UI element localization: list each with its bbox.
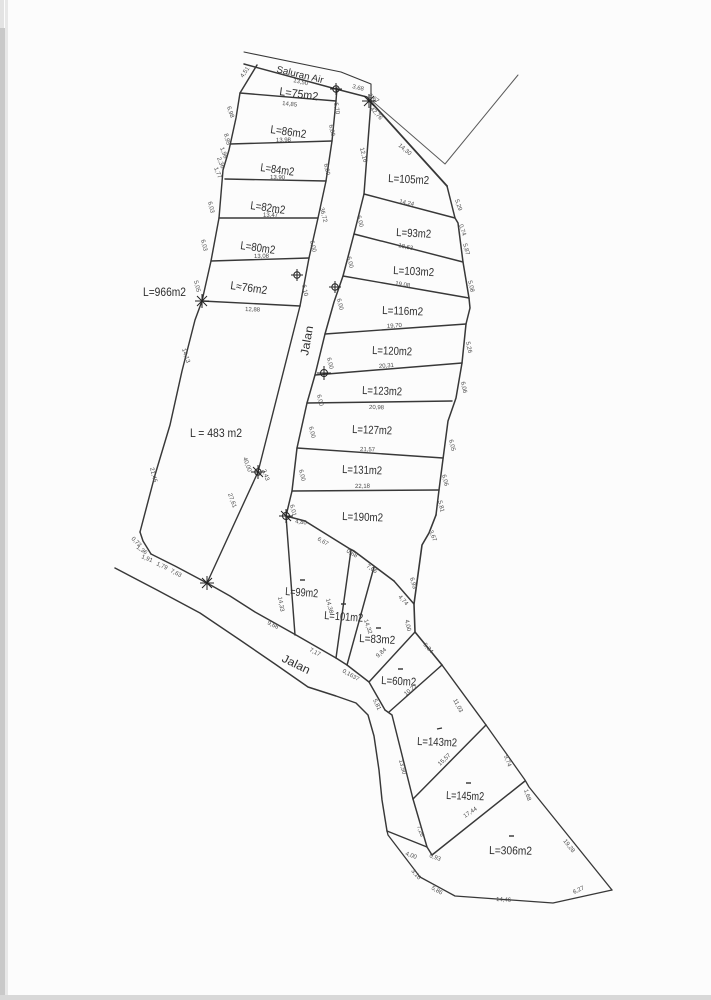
- svg-text:13,47: 13,47: [263, 213, 279, 219]
- svg-text:L=93m2: L=93m2: [396, 227, 432, 241]
- svg-text:12,88: 12,88: [245, 307, 261, 314]
- svg-text:22,18: 22,18: [355, 484, 371, 490]
- svg-text:L=83m2: L=83m2: [359, 633, 396, 647]
- svg-text:L=116m2: L=116m2: [382, 305, 423, 318]
- svg-text:L=105m2: L=105m2: [388, 173, 430, 187]
- svg-text:13,08: 13,08: [254, 254, 270, 260]
- svg-text:13,98: 13,98: [276, 137, 292, 144]
- svg-text:L=103m2: L=103m2: [393, 265, 435, 279]
- svg-text:21,57: 21,57: [360, 447, 376, 454]
- svg-text:L=306m2: L=306m2: [489, 845, 532, 858]
- svg-text:L=131m2: L=131m2: [342, 464, 382, 477]
- svg-text:20,98: 20,98: [369, 405, 385, 411]
- svg-text:L=99m2: L=99m2: [285, 586, 319, 600]
- svg-text:L=966m2: L=966m2: [143, 285, 186, 299]
- svg-text:L=143m2: L=143m2: [417, 736, 457, 749]
- svg-text:L=123m2: L=123m2: [362, 385, 402, 398]
- svg-text:19,70: 19,70: [387, 323, 403, 330]
- svg-text:20,31: 20,31: [379, 363, 395, 370]
- svg-text:14,46: 14,46: [496, 897, 512, 904]
- svg-text:L=120m2: L=120m2: [372, 345, 412, 358]
- svg-text:L = 483 m2: L = 483 m2: [190, 426, 242, 440]
- svg-text:L=190m2: L=190m2: [342, 511, 383, 524]
- svg-text:13,90: 13,90: [270, 175, 286, 181]
- svg-text:L=145m2: L=145m2: [446, 790, 484, 803]
- svg-text:L=127m2: L=127m2: [352, 424, 392, 437]
